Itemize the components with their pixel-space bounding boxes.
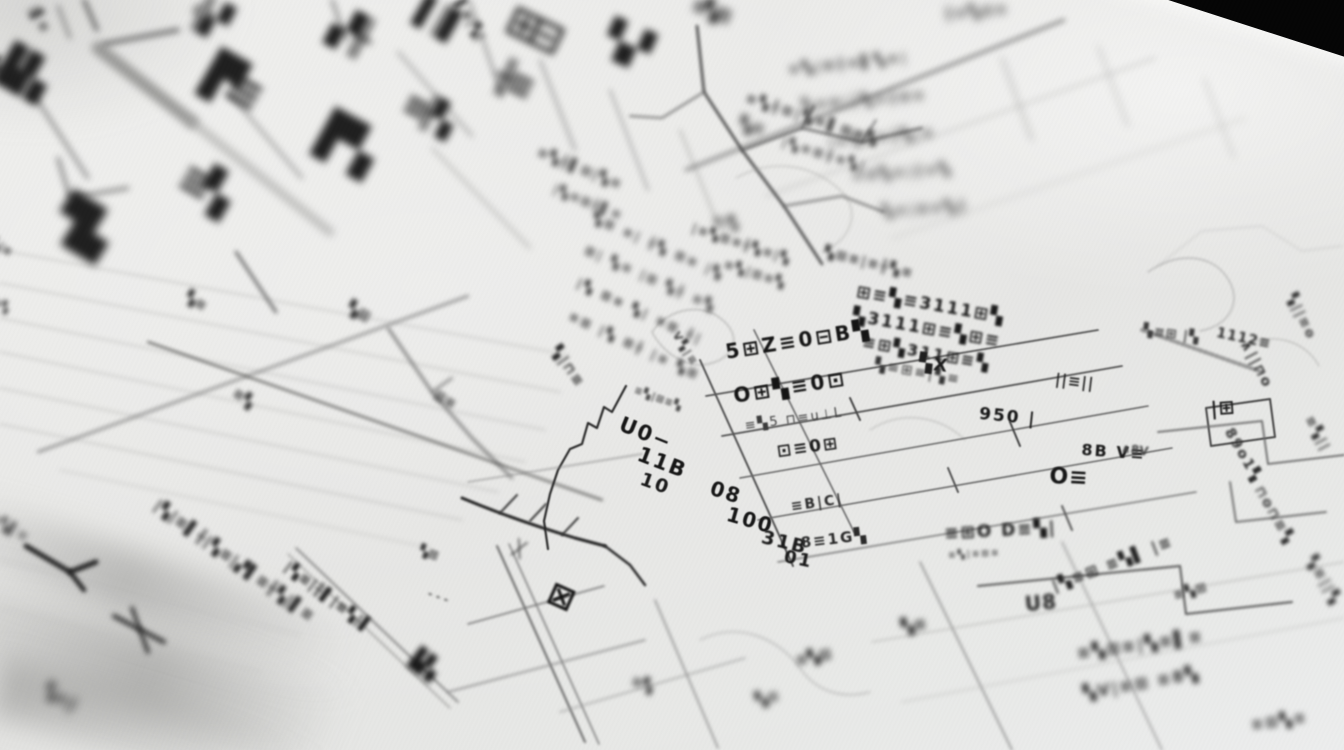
text-tr-corner: ╫≡▚⊞≡ [944, 2, 1009, 22]
label-ml-4: ⊞≡ [431, 388, 458, 412]
text-col-r-3: ▚||≡o [1284, 292, 1317, 342]
tiny-od-sub: ≡▚|≡⊞≡ [948, 549, 1001, 561]
char-tc-3: ⊞⊟ [500, 0, 562, 57]
bold-row-a2: O⊞▚≡0⊡ [732, 368, 848, 406]
text-br-1: ≡▚⊞≡|▚≡▌≡ [1076, 628, 1205, 662]
label-ml-3: ▚⊞ [345, 300, 373, 325]
tr-table-row-1: ≡▚|⊞╫≡▌▚≡| [788, 51, 910, 77]
char-tc-7: ╫≡ [489, 58, 534, 103]
photo-of-paper-document: ▙▚╬▞▛≡▜▙≡▚|▌≡▚|≡▞╫▌║▌⊞⊟▚▞≡╫▚▛▚╫≡▌≡|▚|≡▚╫… [0, 0, 1344, 750]
bold-u8: U8 [1024, 591, 1058, 614]
char-tc-5: ≡╫▚ [397, 86, 453, 136]
label-ml-2: ≡▚ [230, 386, 256, 411]
text-br-2: ▚V|≡⊞ ≡8▚ [1082, 666, 1201, 702]
text-r-1: ▚≡⊞ |▚ [1142, 324, 1200, 345]
string-asc-br: |▚≡⊞ ≡▚▌ |≡ [1050, 534, 1175, 594]
bold-O: O≡ [1049, 466, 1089, 490]
char-tc-1: ▞╫ [324, 6, 372, 56]
text-col-r-4: ≡▚|| [1303, 414, 1333, 454]
bold-box-glyph: |⊞ [1210, 398, 1236, 419]
char-tl-4: ▜▙ [48, 192, 110, 255]
char-tl-2: ╬▞ [186, 0, 227, 37]
blob-bc-2: ≡▚⊞ [794, 646, 833, 668]
text-row-ct: ≡▚|⊞≡▚ [633, 386, 684, 413]
text-left-mid-2: ≡▚ [0, 296, 11, 314]
dashes-bc: - - - [426, 588, 450, 606]
text-row-tc-1: ≡▚╫▌⊞|▚≡ [535, 146, 624, 192]
bold-od-row: ≡⊞O D≡▚| [944, 520, 1057, 543]
text-col-br: ▚≡||▚ [1304, 554, 1343, 607]
tr-table-row-2: ▚≡⊞|║▚≡╫⊞≡ [802, 89, 928, 113]
digit-stair-7: 01 [782, 548, 814, 572]
text-col-tl-1: |▌≡ [27, 4, 52, 35]
string-mid-3: ▚⊞≡|≡╫▚≡ [823, 246, 916, 281]
row-a5: ≡B|C| [790, 493, 844, 514]
text-col-r-2: 89o1▚ [1222, 426, 1264, 485]
text-br-3: ≡⊞▚≡ [1250, 710, 1309, 733]
text-br-4: ≡▚⊞ [1172, 581, 1209, 603]
text-left-mid-1: ▚|≡ [0, 236, 15, 258]
blob-bl: ▚≡╫ [41, 682, 79, 715]
document-text-layer: ▙▚╬▞▛≡▜▙≡▚|▌≡▚|≡▞╫▌║▌⊞⊟▚▞≡╫▚▛▚╫≡▌≡|▚|≡▚╫… [0, 0, 1344, 750]
tr-table-row-5: ▚≡|⊞≡▚╫ [882, 200, 969, 219]
text-tr-label-1: ▚≡ [738, 116, 767, 138]
char-tc-4: ▚▞ [599, 20, 648, 68]
bold-950: 950 | [978, 406, 1037, 429]
mark-bc-x: ╳ [511, 540, 526, 559]
mark-ct-1: ▚X [917, 354, 949, 376]
text-r-2: ∧8V [1120, 442, 1149, 458]
blob-bc-1: ▚≡ [900, 616, 928, 636]
digit-stair-4: 08 [708, 478, 744, 507]
grid-row-1: ▚⊞ ≡| ╫▚ ⊞≡ |▚ [591, 212, 726, 281]
blob-bc-dark: ▙▚ [406, 648, 438, 680]
row-a3: ≡▚5 ⊓≡u⊥L [744, 406, 844, 433]
char-tl-3: ▛≡ [197, 50, 262, 114]
cell-block-dark: ⊠ [543, 576, 581, 616]
mark-bars: ||≡|| [1054, 372, 1095, 392]
text-col-ct-1: ▚|⊓≡ [549, 344, 587, 390]
char-tl-5: ≡▚ [171, 155, 231, 214]
text-col-r-5: ⊓o⊓≡▚ [1252, 484, 1296, 547]
label-bc-1: ▚⊞ [418, 544, 440, 562]
label-ml-1: ▚≡ [183, 290, 209, 314]
char-tc-6: ▛▚ [312, 110, 375, 173]
blob-bc-4: ≡▚ [629, 674, 655, 695]
blob-bc-3: ▚≡ [754, 688, 781, 708]
bold-row-a4: ⊡≡0⊞ [776, 435, 840, 461]
row-a6: 8≡1G▚ [800, 528, 869, 551]
char-tr-edge: ≡▚⊞ [689, 0, 731, 25]
text-bl-faint: ≡▚▌≡ [0, 512, 30, 544]
